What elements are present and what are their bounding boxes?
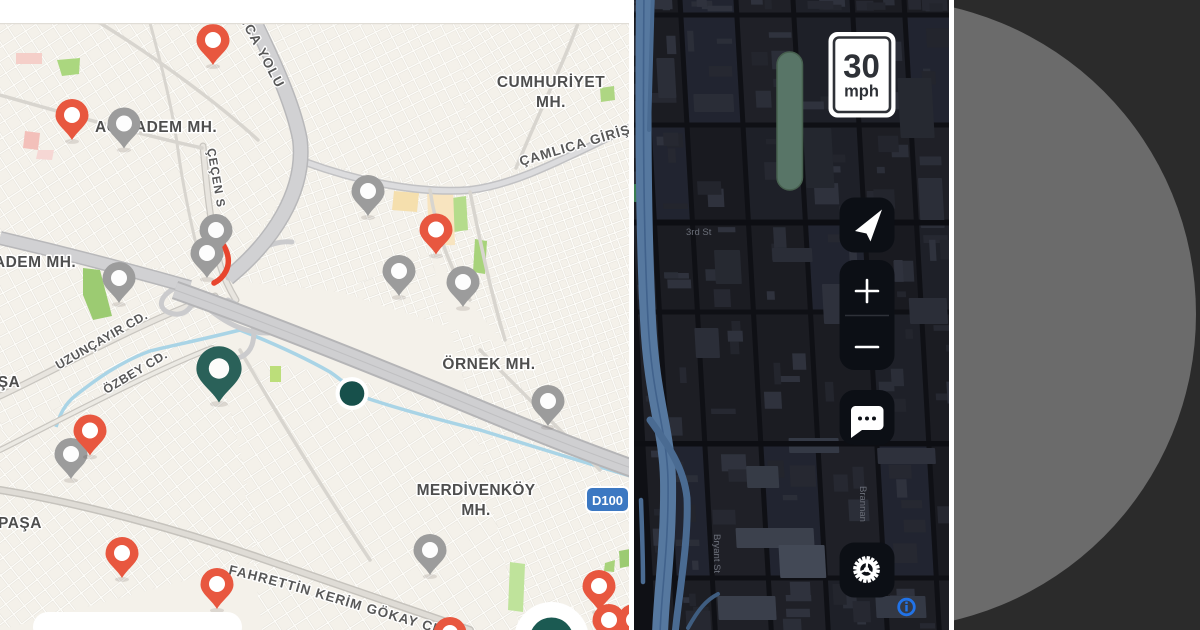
svg-text:3rd St: 3rd St bbox=[686, 227, 712, 238]
svg-text:MH.: MH. bbox=[461, 502, 490, 519]
svg-text:mph: mph bbox=[844, 83, 879, 101]
svg-text:AŞA: AŞA bbox=[0, 374, 20, 391]
svg-text:CUMHURİYET: CUMHURİYET bbox=[497, 74, 605, 91]
svg-text:D100: D100 bbox=[592, 493, 623, 508]
svg-text:Brannan: Brannan bbox=[857, 486, 868, 522]
svg-text:Bryant St: Bryant St bbox=[711, 534, 722, 573]
svg-text:PAŞA: PAŞA bbox=[0, 515, 42, 532]
svg-text:MERDİVENKÖY: MERDİVENKÖY bbox=[417, 482, 536, 499]
svg-text:MH.: MH. bbox=[536, 94, 566, 111]
svg-text:ÖRNEK MH.: ÖRNEK MH. bbox=[442, 356, 535, 373]
svg-text:30: 30 bbox=[843, 48, 880, 85]
svg-text:ACIBADEM MH.: ACIBADEM MH. bbox=[0, 254, 76, 271]
